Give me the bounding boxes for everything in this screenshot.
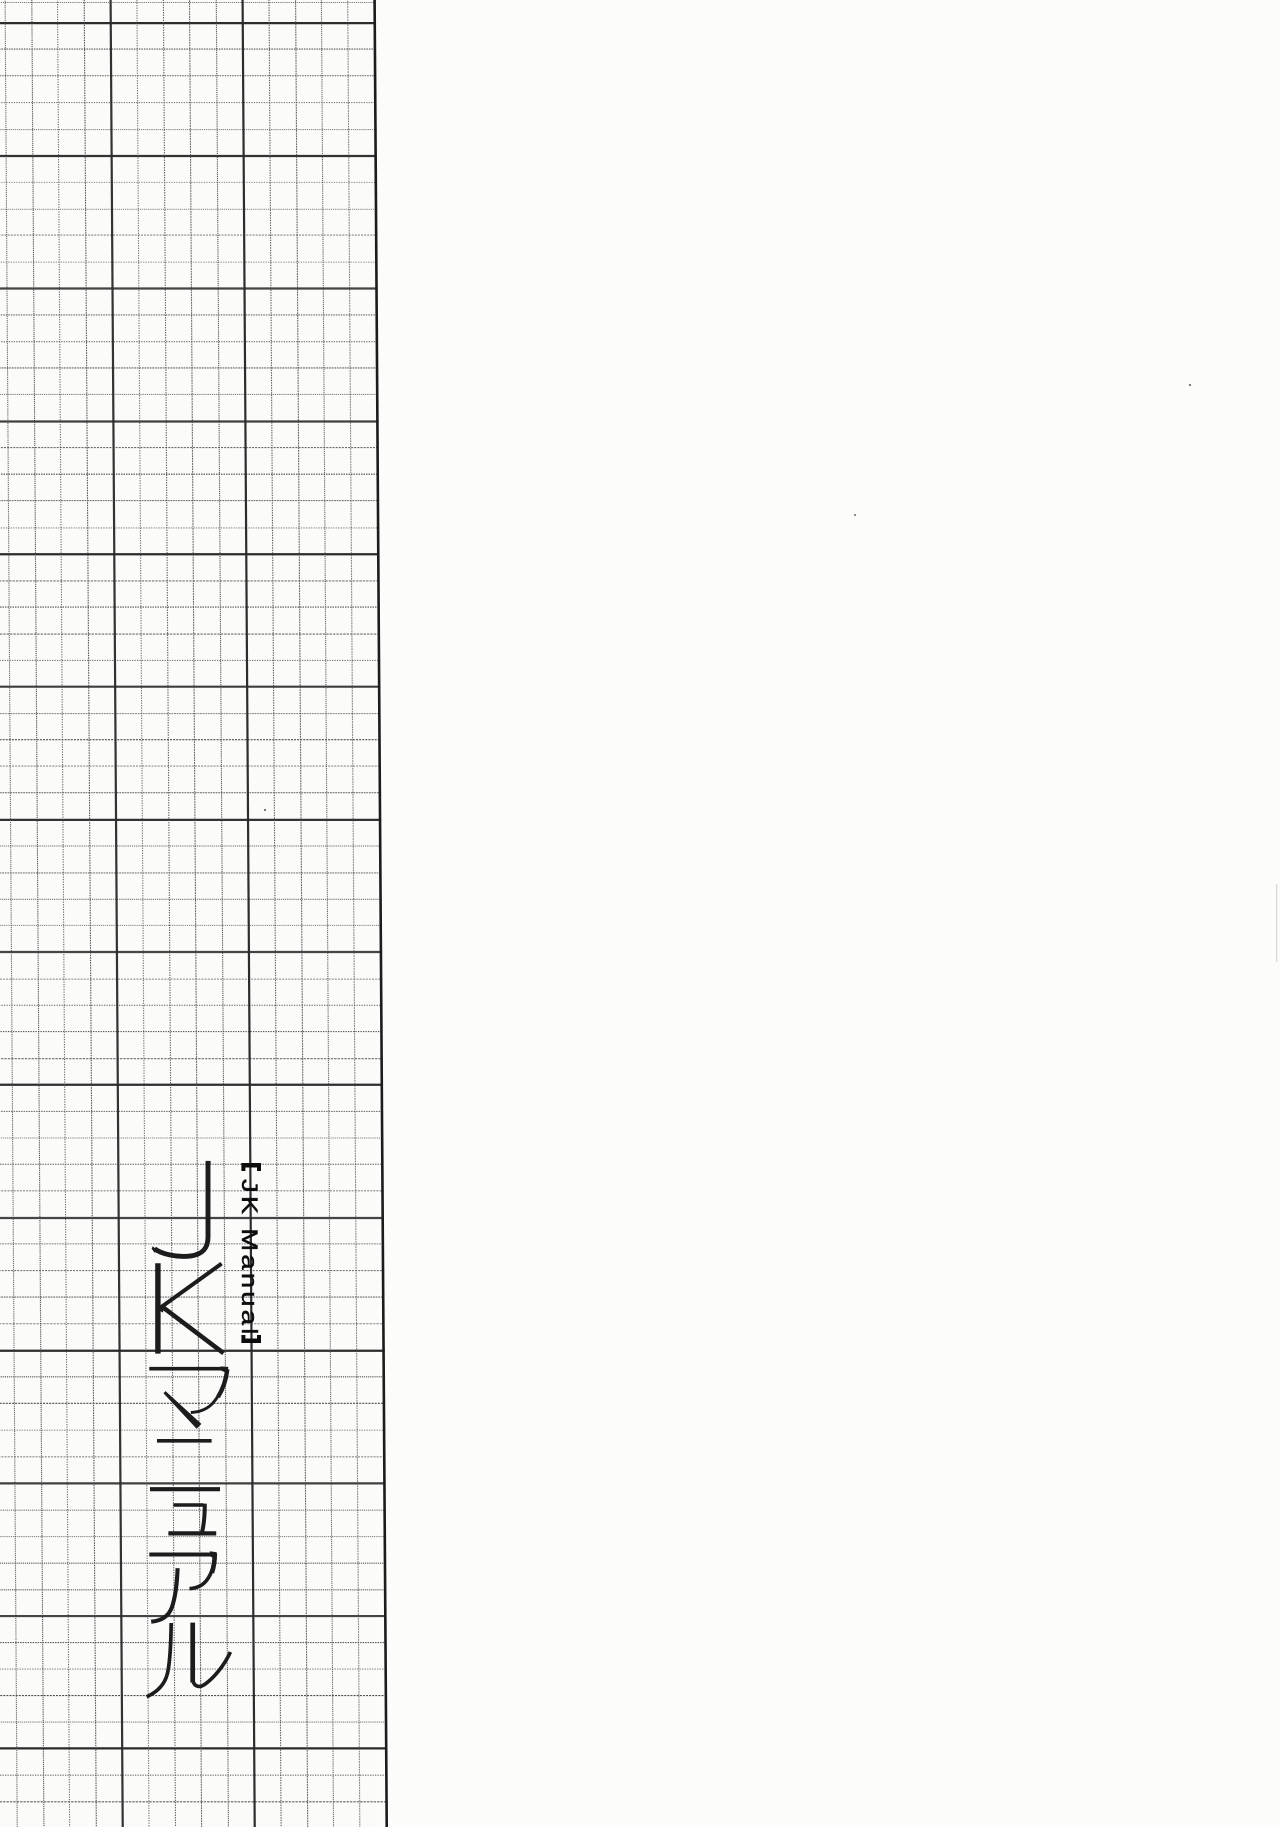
svg-text:JK Manual: JK Manual (237, 1179, 262, 1338)
